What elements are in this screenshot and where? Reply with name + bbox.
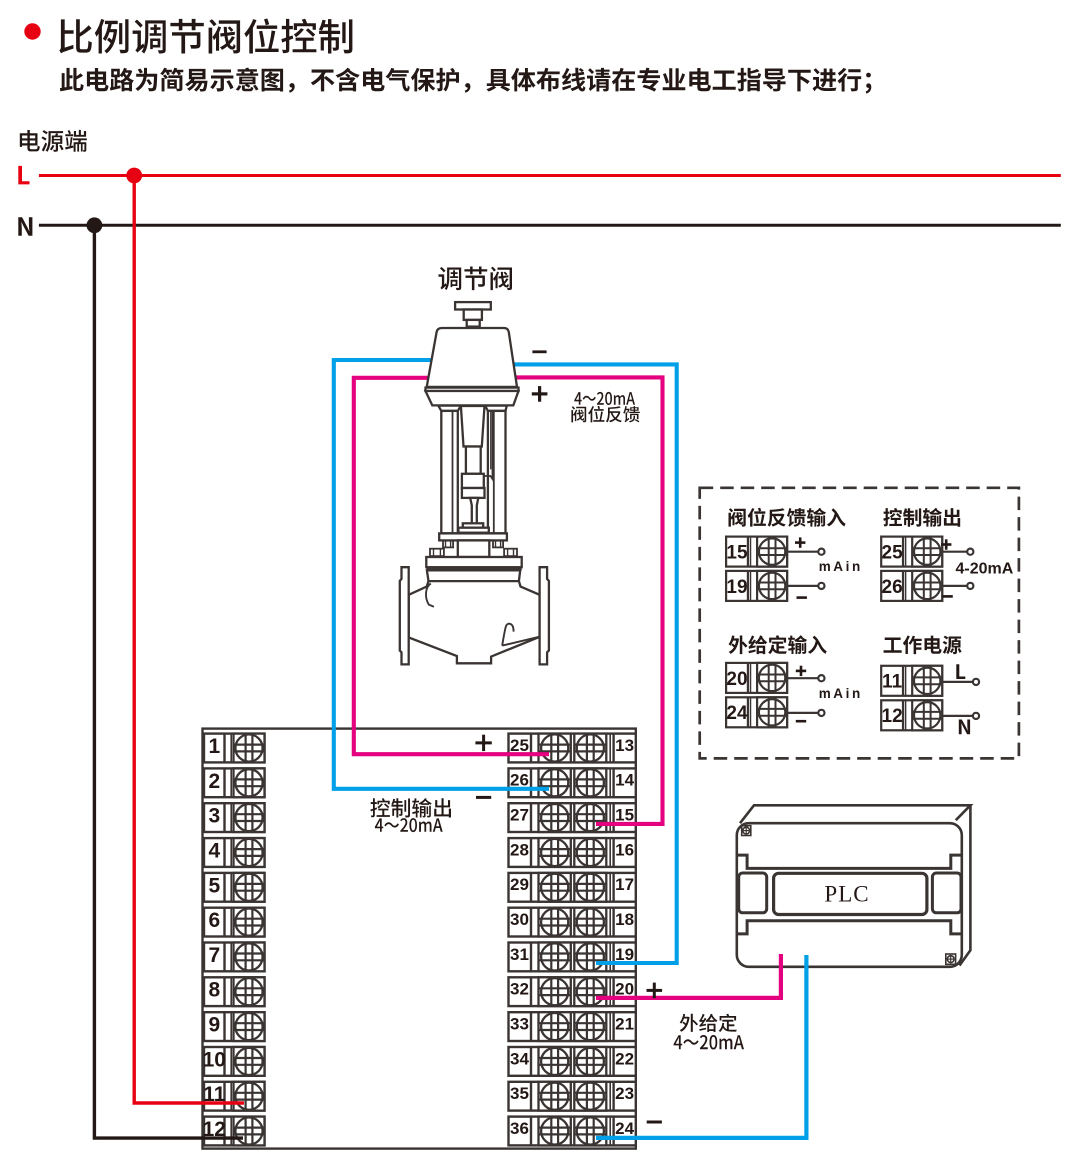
svg-text:4: 4 (208, 840, 220, 863)
svg-text:5: 5 (208, 874, 220, 897)
svg-text:15: 15 (726, 543, 748, 564)
svg-text:20: 20 (615, 980, 634, 999)
svg-text:17: 17 (615, 875, 634, 894)
svg-text:3: 3 (208, 805, 220, 828)
svg-text:PLC: PLC (824, 882, 869, 907)
svg-text:11: 11 (882, 672, 903, 693)
svg-text:4-20mA: 4-20mA (956, 561, 1014, 578)
svg-text:16: 16 (615, 840, 634, 859)
svg-text:mAin: mAin (819, 559, 863, 574)
svg-text:35: 35 (510, 1084, 529, 1103)
svg-text:23: 23 (615, 1084, 634, 1103)
svg-text:2: 2 (208, 770, 220, 793)
svg-text:20: 20 (726, 669, 747, 690)
svg-text:15: 15 (615, 806, 634, 825)
svg-text:7: 7 (208, 944, 220, 967)
svg-text:1: 1 (208, 735, 220, 758)
svg-text:8: 8 (208, 979, 220, 1002)
svg-text:14: 14 (615, 771, 634, 790)
svg-text:10: 10 (203, 1048, 226, 1071)
svg-text:9: 9 (208, 1014, 220, 1037)
svg-text:26: 26 (882, 577, 903, 598)
svg-text:33: 33 (510, 1015, 529, 1034)
svg-text:28: 28 (510, 840, 529, 859)
svg-text:29: 29 (510, 875, 529, 894)
svg-text:30: 30 (510, 910, 529, 929)
svg-text:12: 12 (882, 706, 903, 727)
svg-text:25: 25 (882, 543, 904, 564)
svg-text:13: 13 (615, 736, 634, 755)
svg-text:mAin: mAin (819, 686, 863, 701)
svg-text:22: 22 (615, 1049, 634, 1068)
svg-text:24: 24 (726, 703, 748, 724)
svg-text:34: 34 (510, 1049, 529, 1068)
svg-text:24: 24 (615, 1119, 634, 1138)
svg-text:27: 27 (510, 806, 529, 825)
svg-text:31: 31 (510, 945, 529, 964)
svg-text:19: 19 (726, 577, 747, 598)
svg-text:6: 6 (208, 909, 220, 932)
svg-text:18: 18 (615, 910, 634, 929)
svg-text:36: 36 (510, 1119, 529, 1138)
svg-text:21: 21 (615, 1015, 634, 1034)
svg-text:25: 25 (510, 736, 529, 755)
svg-text:32: 32 (510, 980, 529, 999)
